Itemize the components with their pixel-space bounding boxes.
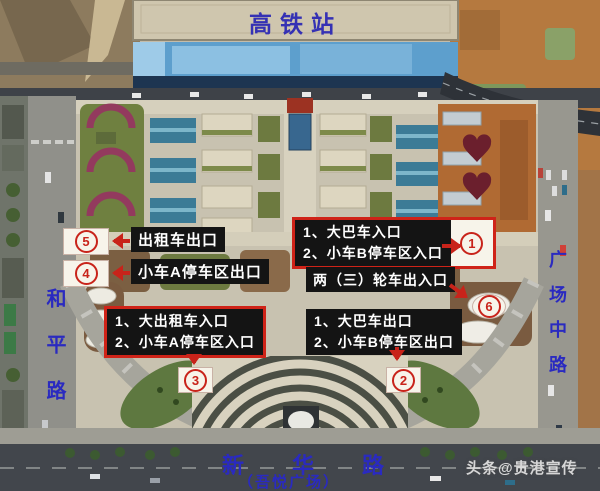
station-name-label: 高铁站: [133, 5, 458, 39]
ann-5-arrow: [114, 239, 130, 243]
ann-5-label: 出租车出口: [131, 227, 225, 252]
circled-number-6: 6: [478, 295, 501, 318]
ann-1-arrow: [442, 244, 460, 248]
guangchang-middle-road-label: 广场中路: [544, 250, 570, 390]
west-garden: [80, 104, 144, 244]
ann-2-arrow: [395, 347, 399, 359]
ann-5-badge: 5: [63, 228, 109, 255]
ann-1-lines: 1、大巴车入口 2、小车B停车区入口: [295, 220, 451, 266]
ann-3-line-1: 1、大出租车入口: [115, 311, 255, 332]
ann-2-label: 1、大巴车出口 2、小车B停车区出口: [306, 309, 462, 355]
ann-2-line-1: 1、大巴车出口: [314, 311, 454, 332]
ann-4-badge: 4: [63, 260, 109, 287]
circled-number-4: 4: [75, 262, 98, 285]
ann-2-badge: 2: [386, 367, 421, 393]
ann-3-line-2: 2、小车A停车区入口: [115, 332, 255, 353]
west-buildings-strip: [0, 96, 28, 466]
ann-2-line-2: 2、小车B停车区出口: [314, 332, 454, 353]
circled-number-5: 5: [75, 230, 98, 253]
watermark: 头条@贵港宣传: [466, 457, 578, 478]
ann-3-lines: 1、大出租车入口 2、小车A停车区入口: [107, 309, 263, 355]
ann-3-frame: 1、大出租车入口 2、小车A停车区入口: [104, 306, 266, 358]
ann-1-line-1: 1、大巴车入口: [303, 222, 443, 243]
annotated-aerial-map: 高铁站 和平路 广场中路 新华路 （吾悦广场） 头条@贵港宣传 5 出租车出口 …: [0, 0, 600, 491]
heping-road-label: 和平路: [40, 288, 69, 426]
ann-1-line-2: 2、小车B停车区入口: [303, 243, 443, 264]
ann-4-arrow: [114, 271, 130, 275]
ann-6-label: 两（三）轮车出入口: [306, 267, 455, 292]
station-canopy: [133, 42, 458, 90]
wuyue-plaza-label: （吾悦广场）: [238, 471, 340, 491]
circled-number-2: 2: [392, 369, 415, 392]
east-terracotta-garden: [438, 104, 536, 234]
ann-3-arrow: [192, 355, 196, 363]
ann-4-label: 小车A停车区出口: [131, 259, 269, 284]
